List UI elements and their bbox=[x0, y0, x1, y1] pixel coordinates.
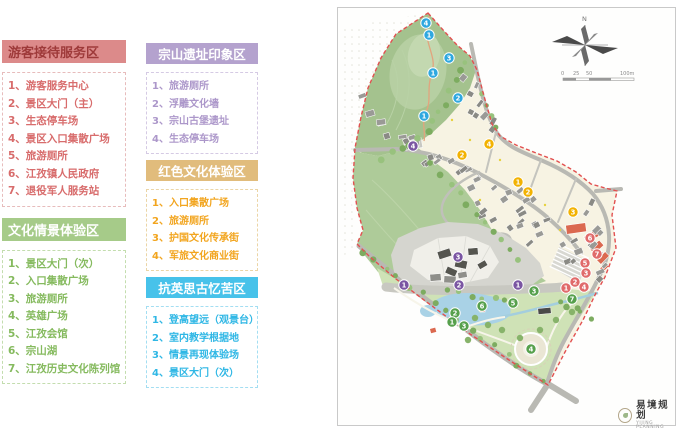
map-marker-number: 3 bbox=[532, 287, 537, 295]
svg-text:100m: 100m bbox=[620, 71, 635, 77]
park-tree bbox=[553, 317, 559, 323]
tree bbox=[429, 118, 435, 124]
map-marker-number: 1 bbox=[427, 31, 432, 39]
map-marker-number: 1 bbox=[431, 69, 436, 77]
tree bbox=[433, 300, 439, 306]
logo-en-text: YIJING PLANNING bbox=[636, 422, 680, 431]
tree bbox=[437, 171, 444, 178]
tree bbox=[443, 308, 448, 313]
tree bbox=[458, 190, 463, 195]
map-marker-number: 3 bbox=[584, 269, 589, 277]
map-marker-number: 6 bbox=[480, 302, 485, 310]
park-tree bbox=[537, 327, 543, 333]
map-marker-number: 1 bbox=[564, 284, 569, 292]
map-marker-number: 4 bbox=[487, 140, 492, 148]
village-building bbox=[398, 134, 407, 139]
tree bbox=[474, 212, 479, 217]
tree bbox=[454, 77, 460, 83]
tree bbox=[492, 342, 497, 347]
tree bbox=[449, 182, 455, 188]
park-tree bbox=[499, 327, 505, 333]
svg-text:25: 25 bbox=[573, 71, 579, 77]
map-marker-number: 2 bbox=[453, 309, 458, 317]
tree bbox=[563, 304, 570, 311]
logo-icon bbox=[618, 408, 632, 423]
map-marker-number: 2 bbox=[526, 188, 531, 196]
tree bbox=[427, 160, 433, 166]
map-marker-number: 2 bbox=[457, 281, 462, 289]
map-marker-number: 4 bbox=[529, 345, 534, 353]
park-tree bbox=[472, 315, 478, 321]
tree bbox=[393, 273, 398, 278]
tree bbox=[589, 316, 594, 321]
map-marker-number: 1 bbox=[516, 281, 521, 289]
tree bbox=[399, 145, 406, 152]
tree bbox=[558, 299, 563, 304]
tree bbox=[483, 220, 487, 224]
map-graphics: 4131214312142123675324137562134 N 0 25 5… bbox=[0, 0, 680, 432]
tree bbox=[414, 135, 421, 142]
map-marker-number: 3 bbox=[571, 208, 576, 216]
map-marker-number: 5 bbox=[583, 259, 588, 267]
map-marker-number: 7 bbox=[595, 250, 600, 258]
map-marker-number: 6 bbox=[588, 234, 593, 242]
map-marker-number: 3 bbox=[447, 54, 452, 62]
tree bbox=[491, 229, 497, 235]
tree bbox=[578, 309, 582, 313]
tree bbox=[389, 148, 395, 154]
tree bbox=[463, 201, 470, 208]
map-marker-number: 1 bbox=[516, 178, 521, 186]
tree bbox=[507, 352, 512, 357]
scale-bar: 0 25 50 100m bbox=[561, 71, 635, 81]
map-marker-number: 2 bbox=[573, 278, 578, 286]
map-marker-number: 2 bbox=[460, 151, 465, 159]
tree bbox=[446, 88, 452, 94]
compass-rose: N bbox=[552, 15, 618, 66]
map-marker-number: 2 bbox=[456, 94, 461, 102]
tree bbox=[443, 102, 449, 108]
tree bbox=[445, 287, 450, 292]
north-label: N bbox=[582, 15, 587, 23]
map-marker-number: 4 bbox=[582, 283, 587, 291]
map-marker-number: 4 bbox=[411, 142, 416, 150]
tree bbox=[515, 257, 521, 263]
map-marker-number: 1 bbox=[450, 318, 455, 326]
map-marker-number: 7 bbox=[570, 295, 575, 303]
map-marker-number: 3 bbox=[456, 253, 461, 261]
tree bbox=[508, 247, 513, 252]
tree bbox=[378, 156, 385, 163]
tree bbox=[462, 60, 467, 65]
park-tree bbox=[517, 335, 523, 341]
tree bbox=[426, 128, 433, 135]
map-marker-number: 5 bbox=[511, 299, 516, 307]
tree bbox=[457, 67, 464, 74]
planning-firm-logo: 易境规划 YIJING PLANNING bbox=[618, 401, 680, 431]
tree bbox=[470, 327, 476, 333]
map-marker-number: 1 bbox=[402, 281, 407, 289]
village-building bbox=[376, 119, 386, 126]
map-marker-number: 1 bbox=[422, 112, 427, 120]
map-marker-number: 3 bbox=[462, 322, 467, 330]
tree bbox=[502, 297, 507, 302]
tree bbox=[493, 295, 499, 301]
logo-cn-text: 易境规划 bbox=[636, 401, 680, 420]
map-marker-number: 4 bbox=[424, 19, 429, 27]
park-tree bbox=[465, 337, 471, 343]
svg-text:0: 0 bbox=[561, 71, 564, 77]
tree bbox=[421, 290, 426, 295]
tree bbox=[470, 294, 476, 300]
park-tree bbox=[569, 309, 575, 315]
park-tree bbox=[485, 322, 491, 328]
svg-text:50: 50 bbox=[586, 71, 592, 77]
tree bbox=[436, 109, 441, 114]
tree bbox=[498, 237, 503, 242]
